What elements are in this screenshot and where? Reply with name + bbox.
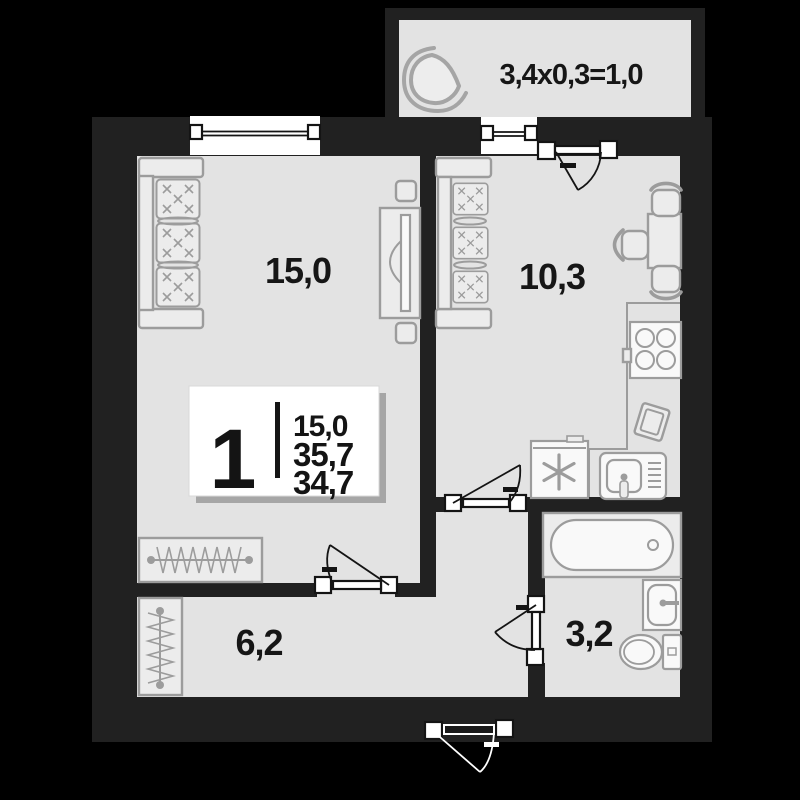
wardrobe-icon <box>139 538 262 582</box>
tv-screen <box>401 215 410 311</box>
kitchen-area-label: 10,3 <box>519 256 585 297</box>
living-area-label: 15,0 <box>265 250 331 291</box>
living-room-floor <box>137 156 420 583</box>
door-hinge <box>538 142 555 159</box>
door-leaf <box>532 612 540 649</box>
sofa-icon <box>436 158 491 328</box>
stove-body <box>630 322 681 378</box>
sofa-icon <box>139 158 203 328</box>
window-frame-end <box>481 126 493 140</box>
washbasin-drain <box>660 600 667 607</box>
floor-plan: 3,4x0,3=1,0 15,0 10,3 6,2 3,2 1 15,0 35,… <box>0 0 800 800</box>
chair-icon <box>652 190 680 216</box>
speaker <box>396 323 416 343</box>
unit-info-badge: 1 15,0 35,7 34,7 <box>189 386 386 506</box>
rod-end <box>147 556 155 564</box>
bathtub-inner <box>551 520 673 570</box>
sink-drain <box>621 474 628 481</box>
sofa-armrest <box>139 158 203 177</box>
window-frame-end <box>525 126 537 140</box>
toilet-tank <box>663 635 681 669</box>
sink-faucet <box>620 481 628 498</box>
door-hinge <box>527 649 543 665</box>
sofa-cushion <box>157 224 200 263</box>
toilet-icon <box>620 635 681 669</box>
sofa-cushion <box>157 268 200 307</box>
living-room-window <box>190 116 320 155</box>
sofa-armrest <box>436 309 491 328</box>
fridge-handle <box>567 436 583 442</box>
window-frame-end <box>308 125 320 139</box>
door-hinge <box>600 141 617 158</box>
balcony-area-label: 3,4x0,3=1,0 <box>499 59 642 91</box>
badge-divider <box>275 402 280 478</box>
door-hinge <box>496 720 513 737</box>
rod-end <box>156 681 164 689</box>
door-leaf <box>444 725 494 734</box>
rod-end <box>245 556 253 564</box>
balcony-window <box>481 117 537 154</box>
sofa-cushion <box>453 183 488 214</box>
window-frame-end <box>190 125 202 139</box>
hallway-area-label: 6,2 <box>235 622 282 663</box>
washbasin-icon <box>643 580 681 630</box>
chair-icon <box>622 231 648 259</box>
sofa-cushion <box>453 271 488 302</box>
rod-end <box>156 607 164 615</box>
speaker <box>396 181 416 201</box>
door-handle <box>516 605 527 610</box>
sofa-cushion <box>157 180 200 219</box>
stove-knob <box>623 349 631 362</box>
dining-table <box>648 214 681 268</box>
sofa-armrest <box>139 309 203 328</box>
chair-icon <box>652 266 680 292</box>
stove-icon <box>623 322 681 378</box>
fridge-icon <box>531 436 588 498</box>
wardrobe-icon <box>139 598 182 695</box>
door-leaf <box>463 499 509 507</box>
sofa-backrest <box>438 177 451 309</box>
floor-plan-drawing: 3,4x0,3=1,0 15,0 10,3 6,2 3,2 1 15,0 35,… <box>0 0 800 800</box>
door-handle <box>322 567 337 572</box>
room-count: 1 <box>210 412 257 506</box>
door-hinge <box>315 577 331 593</box>
sofa-cushion <box>453 227 488 258</box>
sink-icon <box>600 453 666 499</box>
hallway-floor <box>137 597 528 697</box>
bathtub-icon <box>543 513 681 577</box>
bathroom-area-label: 3,2 <box>565 613 612 654</box>
door-leaf <box>555 146 600 154</box>
badge-reduced-area: 34,7 <box>293 464 353 501</box>
door-leaf <box>333 581 381 589</box>
sofa-backrest <box>139 176 153 310</box>
sofa-armrest <box>436 158 491 177</box>
